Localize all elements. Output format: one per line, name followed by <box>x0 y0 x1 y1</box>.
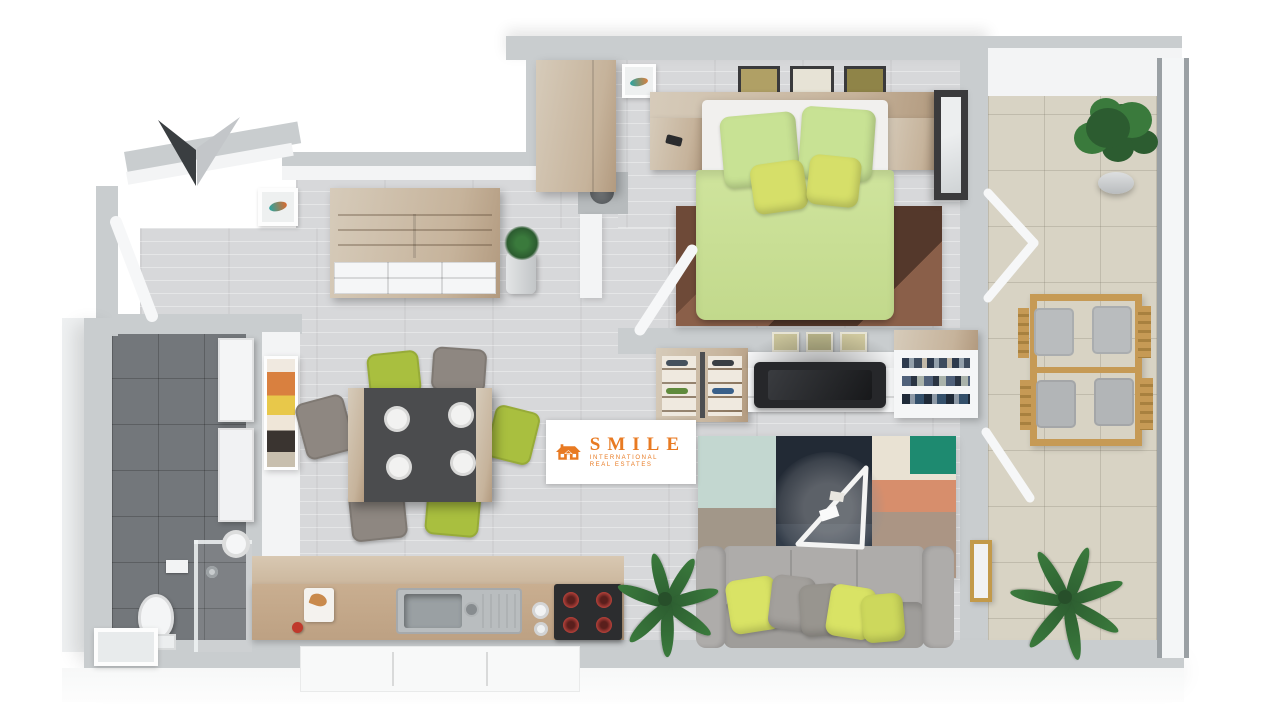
balcony-chair-back-1 <box>1138 306 1151 358</box>
balcony-bush <box>1086 108 1130 148</box>
dining-table <box>348 388 492 502</box>
balcony-chair-cushion-3 <box>1036 380 1076 428</box>
kitchen-backsplash <box>252 556 624 586</box>
balcony-chair-back-3 <box>1018 308 1029 358</box>
sideboard-divider <box>413 214 416 258</box>
tomato <box>292 622 303 633</box>
succulent-plant <box>504 226 540 260</box>
towel-holder <box>166 560 188 573</box>
gold-framed-picture <box>970 540 992 602</box>
accent-pillow-right <box>806 153 863 208</box>
place-setting-3 <box>386 454 412 480</box>
house-icon <box>556 434 581 470</box>
logo-brand-text: SMILE <box>590 435 686 455</box>
logo-text-block: SMILE INTERNATIONAL REAL ESTATES <box>590 435 686 469</box>
left-outer-face <box>62 318 84 652</box>
shoe-shelf-divider <box>700 352 705 418</box>
vanity-cabinet <box>218 428 254 522</box>
sideboard <box>330 188 500 298</box>
burner-2 <box>596 592 612 608</box>
shower-head <box>206 566 218 578</box>
wardrobe <box>536 60 616 192</box>
sofa-armrest-right <box>922 546 954 648</box>
place-setting-1 <box>384 406 410 432</box>
bathroom-top-wall <box>112 314 302 334</box>
bathroom-outer-wall <box>84 318 112 652</box>
balcony-railing-frame-inner <box>1157 58 1162 658</box>
plant-center <box>658 592 672 606</box>
tv-screen <box>768 370 872 400</box>
cabinet-seam-2 <box>486 652 488 686</box>
entry-wall-picture <box>258 188 298 226</box>
balcony-chair-cushion-2 <box>1092 306 1132 354</box>
book-row-2 <box>902 376 970 386</box>
shoe-pair-4 <box>712 388 734 394</box>
kitchen-base-cabinets <box>300 646 580 692</box>
place-setting-4 <box>450 450 476 476</box>
balcony-table-rail <box>1037 367 1135 373</box>
balcony-chair-cushion-1 <box>1034 308 1074 356</box>
floor-plant-sofa <box>616 556 716 652</box>
shoe-pair-1 <box>666 360 688 366</box>
dining-top-wall <box>282 166 544 180</box>
cooktop <box>554 584 622 640</box>
floorplan-canvas: SMILE INTERNATIONAL REAL ESTATES <box>0 0 1280 720</box>
drawer-seam-v1 <box>387 262 389 294</box>
sink-faucet <box>466 604 477 615</box>
table-end-right <box>476 388 492 502</box>
nightstand-right <box>884 118 938 170</box>
burner-1 <box>563 592 579 608</box>
balcony-top-wall <box>988 48 1182 96</box>
book-row-1 <box>902 358 970 368</box>
hall-art-painting <box>264 356 298 470</box>
table-end-left <box>348 388 364 502</box>
accent-pillow-left <box>749 158 809 215</box>
bookshelf <box>894 330 978 418</box>
dining-chair-top-right <box>431 346 488 394</box>
smile-real-estates-logo: SMILE INTERNATIONAL REAL ESTATES <box>546 420 696 484</box>
shoe-pair-2 <box>712 360 734 366</box>
pot-small <box>534 622 548 636</box>
balcony-chair-back-4 <box>1020 380 1031 430</box>
balcony-chair-back-2 <box>1140 378 1153 430</box>
leaning-mirror <box>934 90 968 200</box>
balcony-chair-cushion-4 <box>1094 378 1134 426</box>
tv <box>754 362 886 408</box>
drawer-seam-h <box>334 277 496 279</box>
book-row-3 <box>902 394 970 404</box>
entry-picture-art <box>268 200 288 213</box>
palm-center <box>1058 590 1072 604</box>
logo-subtitle-line1: INTERNATIONAL <box>590 455 686 462</box>
sink-drainboard <box>482 594 516 628</box>
burner-4 <box>596 617 612 633</box>
logo-subtitle-line2: REAL ESTATES <box>590 462 686 469</box>
corridor-wall-face <box>580 214 602 298</box>
burner-3 <box>563 617 579 633</box>
bird-art <box>629 76 648 87</box>
wardrobe-door-seam <box>592 60 594 192</box>
sink-basin <box>404 594 462 628</box>
balcony-railing-frame-outer <box>1184 58 1189 658</box>
shoe-shelf <box>656 348 748 422</box>
balcony-bush-pot <box>1098 172 1134 194</box>
shoe-pair-3 <box>666 388 688 394</box>
cabinet-seam-1 <box>392 652 394 686</box>
round-sink <box>222 530 250 558</box>
bathroom-window <box>94 628 158 666</box>
bedroom-top-wall <box>506 36 988 60</box>
sofa-pillow-green-3 <box>860 592 906 643</box>
balcony-palm-plant <box>1012 548 1122 652</box>
kitchen-sink <box>396 588 522 634</box>
bottom-outer-face <box>62 668 1184 702</box>
washing-machine <box>218 338 254 422</box>
bookshelf-top <box>894 330 978 350</box>
place-setting-2 <box>448 402 474 428</box>
drawer-seam-v2 <box>441 262 443 294</box>
shower-tray <box>198 540 252 652</box>
rug-teal-patch <box>910 436 956 474</box>
pot-large <box>532 602 549 619</box>
rug-mint-patch <box>698 436 776 508</box>
shower-glass-panel <box>194 540 198 652</box>
balcony-railing-glass <box>1160 58 1186 658</box>
